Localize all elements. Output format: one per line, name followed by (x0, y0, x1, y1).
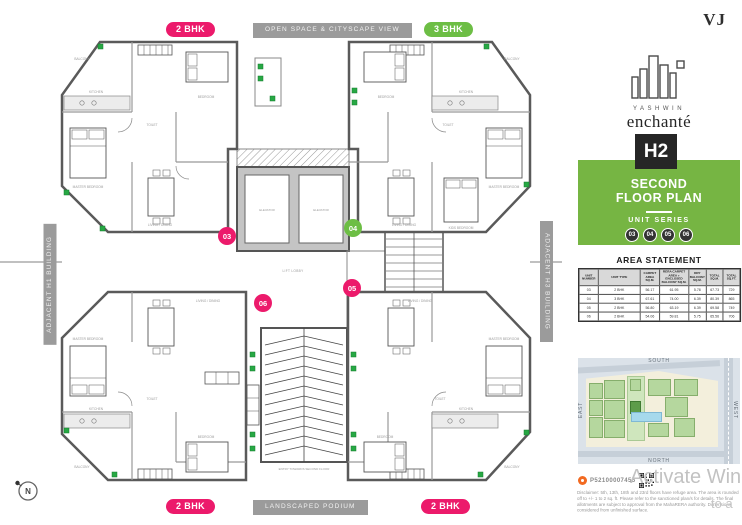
room-label: MASTER BEDROOM (73, 185, 104, 189)
room-label: MASTER BEDROOM (489, 185, 520, 189)
site-map: SOUTH NORTH EAST WEST (578, 358, 740, 464)
table-cell: 865 (723, 294, 740, 303)
room-label: BALCONY (74, 465, 90, 469)
room-label: KITCHEN (459, 90, 474, 94)
room-label: BALCONY (504, 57, 520, 61)
room-label: MASTER BEDROOM (489, 337, 520, 341)
col-header: RERA CARPET AREA + ENCLOSED BALCONY SQ.M… (660, 269, 689, 286)
unit-04-plan: KITCHEN MASTER BEDROOM BEDROOM KIDS BEDR… (349, 42, 530, 232)
badge-2bhk-bottom-right: 2 BHK (421, 499, 470, 514)
unit-marker-06-label: 06 (259, 299, 267, 308)
badge-landscaped-podium: LANDSCAPED PODIUM (253, 500, 368, 515)
badge-open-space: OPEN SPACE & CITYSCAPE VIEW (253, 23, 412, 38)
col-header: CARPET AREA SQ.M. (640, 269, 659, 286)
table-cell: 04 (579, 294, 598, 303)
table-cell: 6.39 (688, 294, 706, 303)
tower-code-badge: H2 (635, 134, 677, 169)
table-cell: 63.19 (660, 303, 689, 312)
room-label: TOILET (146, 397, 157, 401)
road (578, 451, 724, 457)
table-cell: 03 (579, 286, 598, 295)
badge-adjacent-h3: ADJACENT H3 BUILDING (540, 221, 553, 342)
site-boundary (586, 371, 718, 447)
floor-plan-page: ELEVATOR ELEVATOR LIFT LOBBY ENTRY TOWAR… (0, 0, 742, 525)
room-label: LIVING / DINING (196, 299, 221, 303)
col-header: TOTAL SQ.M. (706, 269, 723, 286)
room-label: TOILET (434, 397, 445, 401)
site-map-pool (631, 412, 662, 422)
table-cell: 749 (723, 303, 740, 312)
col-header: UNIT NUMBER (579, 269, 598, 286)
vj-logo: VJ (703, 10, 726, 30)
unit-05-plan: KITCHEN MASTER BEDROOM BEDROOM LIVING / … (348, 292, 530, 480)
table-cell: 2 BHK (598, 303, 640, 312)
brand-logo: YASHWIN enchanté (578, 55, 740, 132)
room-label: BEDROOM (198, 435, 215, 439)
table-cell: 3 BHK (598, 294, 640, 303)
room-label: KIDS BEDROOM (449, 226, 474, 230)
lift-lobby-label: LIFT LOBBY (282, 269, 304, 273)
unit-marker-05-label: 05 (348, 284, 356, 293)
room-label: KITCHEN (89, 407, 104, 411)
room-label: BEDROOM (198, 95, 215, 99)
table-cell: 2 BHK (598, 312, 640, 321)
badge-3bhk-top-right: 3 BHK (424, 22, 473, 37)
badge-2bhk-top-left: 2 BHK (166, 22, 215, 37)
room-label: KITCHEN (459, 407, 474, 411)
table-cell: 56.17 (640, 286, 659, 295)
room-label: BEDROOM (377, 435, 394, 439)
table-cell: 80.39 (706, 294, 723, 303)
main-staircase: ENTRY TOWARDS SECOND FLOOR (247, 328, 361, 471)
col-header: TOTAL SQ.FT. (723, 269, 740, 286)
table-cell: 729 (723, 286, 740, 295)
table-cell: 05 (579, 303, 598, 312)
room-label: LIVING / DINING (408, 299, 433, 303)
unit-series-03: 03 (625, 228, 639, 242)
activate-windows-watermark-line2: to a (711, 496, 733, 511)
unit-series-05: 05 (661, 228, 675, 242)
unit-series-label: UNIT SERIES (578, 217, 740, 224)
room-label: TOILET (442, 123, 453, 127)
table-cell: 61.95 (660, 286, 689, 295)
table-cell: 74.00 (660, 294, 689, 303)
maharera-icon (578, 476, 587, 485)
entry-label: ENTRY TOWARDS SECOND FLOOR (279, 467, 331, 471)
compass: N (13, 476, 41, 509)
area-statement-title: AREA STATEMENT (578, 255, 740, 265)
room-label: MASTER BEDROOM (73, 337, 104, 341)
site-map-south: SOUTH (648, 358, 670, 364)
table-cell: 67.61 (640, 294, 659, 303)
table-cell: 06 (579, 312, 598, 321)
site-map-east: EAST (578, 402, 584, 418)
brand-building-icon (631, 55, 687, 99)
room-label: LIVING / DINING (392, 223, 417, 227)
table-cell: 706 (723, 312, 740, 321)
badge-2bhk-bottom-left: 2 BHK (166, 499, 215, 514)
table-cell: 59.81 (660, 312, 689, 321)
rera-number: P52100007455 (590, 478, 636, 484)
table-cell: 5.78 (688, 286, 706, 295)
badge-adjacent-h1: ADJACENT H1 BUILDING (44, 224, 57, 345)
room-label: KITCHEN (89, 90, 104, 94)
room-label: BEDROOM (378, 95, 395, 99)
floor-plan-drawing: ELEVATOR ELEVATOR LIFT LOBBY ENTRY TOWAR… (0, 0, 562, 525)
unit-03-plan: KITCHEN MASTER BEDROOM BEDROOM LIVING / … (62, 42, 237, 232)
room-label: BALCONY (74, 57, 90, 61)
table-cell: 56.80 (640, 303, 659, 312)
table-cell: 6.39 (688, 303, 706, 312)
elevator-label: ELEVATOR (259, 208, 275, 212)
table-cell: 5.75 (688, 312, 706, 321)
unit-series-circles: 03 04 05 06 (578, 228, 740, 242)
table-cell: 65.56 (706, 312, 723, 321)
col-header: DRY BALCONY SQ.M. (688, 269, 706, 286)
unit-marker-03-label: 03 (223, 232, 231, 241)
room-label: TOILET (146, 123, 157, 127)
table-cell: 69.58 (706, 303, 723, 312)
col-header: UNIT TYPE (598, 269, 640, 286)
table-cell: 2 BHK (598, 286, 640, 295)
unit-series-04: 04 (643, 228, 657, 242)
room-label: BALCONY (504, 465, 520, 469)
floor-title-line2: FLOOR PLAN (578, 191, 740, 205)
compass-north-label: N (25, 487, 31, 496)
brand-enchante: enchanté (578, 112, 740, 132)
site-map-north: NORTH (648, 458, 670, 464)
floor-title-line1: SECOND (578, 177, 740, 191)
site-map-west: WEST (732, 401, 738, 419)
floor-plan-panel: SECOND FLOOR PLAN UNIT SERIES 03 04 05 0… (578, 160, 740, 245)
elevator-label: ELEVATOR (313, 208, 329, 212)
table-cell: 54.06 (640, 312, 659, 321)
unit-marker-04-label: 04 (349, 224, 358, 233)
activate-windows-watermark: Activate Wind (630, 466, 742, 489)
area-statement-table: UNIT NUMBER UNIT TYPE CARPET AREA SQ.M. … (578, 268, 739, 319)
table-cell: 67.73 (706, 286, 723, 295)
unit-series-06: 06 (679, 228, 693, 242)
divider (646, 211, 672, 213)
unit-06-plan: KITCHEN MASTER BEDROOM BEDROOM LIVING / … (62, 292, 246, 480)
room-label: LIVING / DINING (148, 223, 173, 227)
